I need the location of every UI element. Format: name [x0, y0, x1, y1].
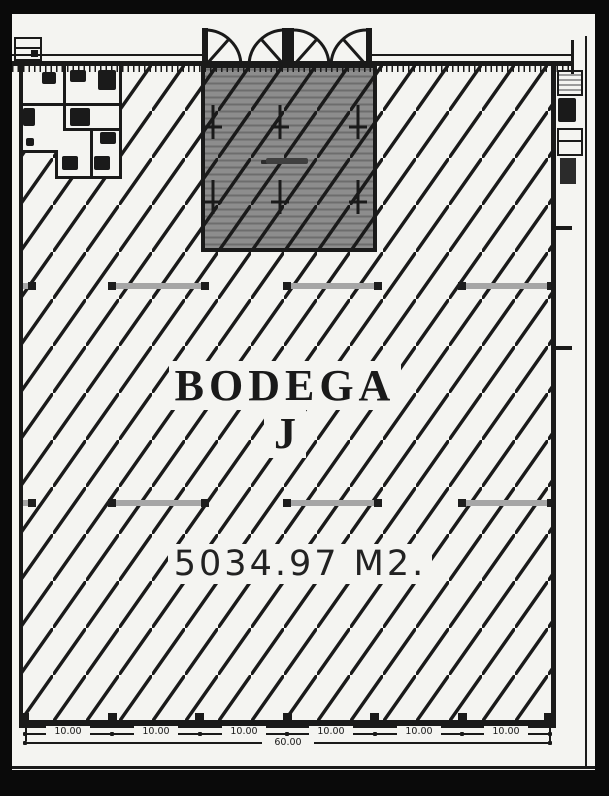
beam: [460, 283, 553, 289]
top-wall-face-right: [372, 54, 573, 56]
furniture-icon: [23, 108, 35, 126]
column-marker: [458, 713, 467, 722]
left-wall: [19, 64, 23, 724]
extension-line: [549, 727, 551, 741]
dimension-tick: [373, 732, 377, 736]
column-marker: [108, 713, 117, 722]
beam: [285, 500, 380, 506]
dimension-tick: [285, 732, 289, 736]
dimension-label: 10.00: [397, 726, 441, 737]
area-label-text: 5034.97 M2.: [168, 544, 432, 584]
wall-tick: [556, 226, 572, 230]
dimension-tick: [23, 741, 27, 745]
office-wall: [63, 64, 66, 128]
service-fixture: [557, 70, 583, 96]
extension-line: [25, 727, 27, 741]
dimension-tick: [548, 741, 552, 745]
office-wall: [55, 152, 58, 179]
wall-tick: [556, 346, 572, 350]
dimension-label: 10.00: [46, 726, 90, 737]
column-marker: [20, 713, 29, 722]
column-marker: [370, 713, 379, 722]
column-marker: [544, 713, 553, 722]
dimension-label: 10.00: [484, 726, 528, 737]
service-fixture: [557, 128, 583, 156]
dimension-tick: [460, 732, 464, 736]
area-label: 5034.97 M2.: [100, 544, 500, 584]
column-marker: [283, 713, 292, 722]
top-wall-end-post: [571, 40, 574, 74]
service-fixture: [558, 98, 576, 122]
right-wall: [551, 64, 556, 724]
unit-title-text: BODEGA: [169, 361, 402, 410]
dock-door-swings-icon: [196, 24, 378, 68]
sheet-bottom-edge: [12, 766, 595, 769]
dimension-tick: [110, 732, 114, 736]
furniture-icon: [42, 72, 56, 84]
dimension-total-label: 60.00: [262, 737, 314, 748]
dimension-tick: [198, 732, 202, 736]
service-fixture: [560, 158, 576, 184]
beam: [285, 283, 380, 289]
furniture-icon: [62, 156, 78, 170]
dimension-label: 10.00: [309, 726, 353, 737]
furniture-icon: [100, 132, 116, 144]
unit-title: BODEGA: [85, 364, 485, 408]
furniture-icon: [94, 156, 110, 170]
furniture-icon: [98, 70, 116, 90]
dimension-label: 10.00: [222, 726, 266, 737]
office-wall: [20, 103, 120, 106]
furniture-icon: [26, 138, 34, 146]
furniture-icon: [70, 108, 90, 126]
office-wall: [55, 176, 122, 179]
office-block: [20, 64, 122, 179]
dimension-label: 10.00: [134, 726, 178, 737]
office-wall: [20, 150, 58, 153]
beam: [110, 500, 207, 506]
unit-letter: J: [85, 412, 485, 456]
office-wall: [90, 128, 93, 179]
right-property-line: [585, 36, 587, 768]
office-wall: [119, 64, 122, 179]
dock-stamp-marks: [266, 158, 308, 164]
column-marker: [195, 713, 204, 722]
unit-letter-text: J: [264, 409, 306, 458]
beam: [110, 283, 207, 289]
furniture-icon: [70, 70, 86, 82]
exterior-stair-block: [14, 37, 42, 61]
floor-plan-drawing: BODEGA J 5034.97 M2. 10.00 10.00 10.00 1…: [0, 0, 609, 796]
beam: [460, 500, 553, 506]
